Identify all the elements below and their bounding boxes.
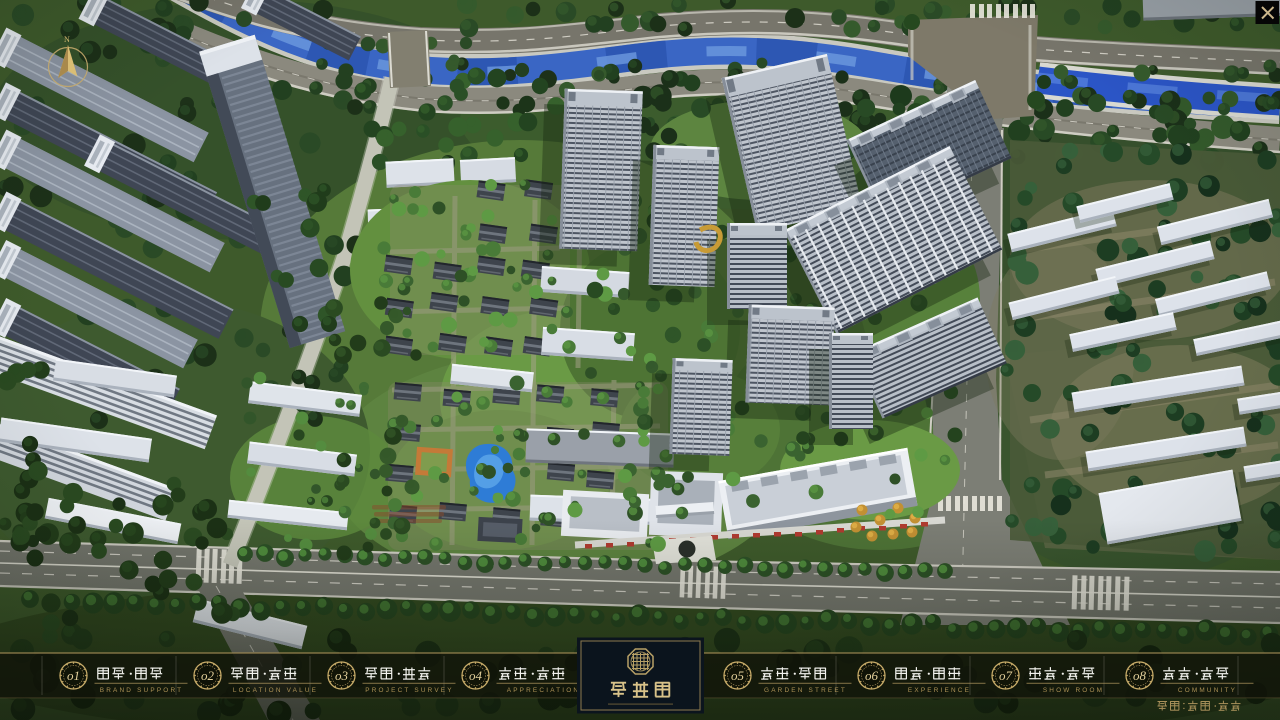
svg-text:N: N (64, 35, 70, 44)
svg-text:BRAND SUPPORT: BRAND SUPPORT (100, 687, 184, 694)
svg-text:o3: o3 (335, 668, 349, 683)
svg-text:EXPERIENCE: EXPERIENCE (908, 687, 971, 694)
svg-text:LOCATION VALUE: LOCATION VALUE (233, 687, 318, 694)
svg-text:SHOW ROOM: SHOW ROOM (1043, 687, 1104, 694)
svg-text:o6: o6 (865, 668, 879, 683)
svg-text:o2: o2 (201, 668, 215, 683)
svg-text:o5: o5 (731, 668, 745, 683)
svg-text:APPRECIATION: APPRECIATION (507, 687, 581, 694)
svg-text:o7: o7 (999, 668, 1013, 683)
svg-text:GARDEN STREET: GARDEN STREET (764, 687, 847, 694)
svg-text:o1: o1 (67, 668, 80, 683)
svg-text:o4: o4 (469, 668, 483, 683)
svg-text:o8: o8 (1133, 668, 1147, 683)
svg-text:PROJECT SURVEY: PROJECT SURVEY (365, 687, 453, 694)
svg-text:COMMUNITY: COMMUNITY (1178, 687, 1237, 694)
